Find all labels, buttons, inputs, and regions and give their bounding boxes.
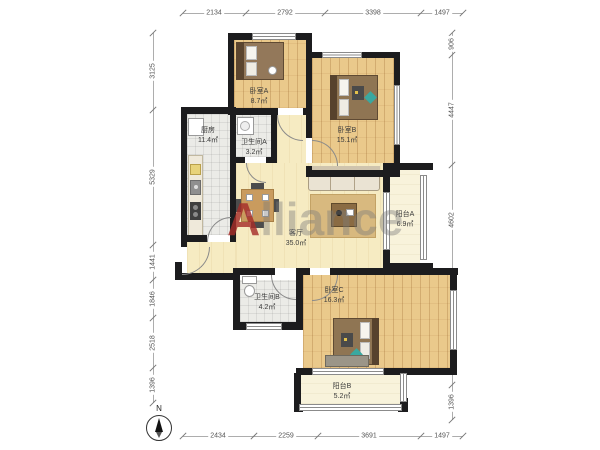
lamp-dot [344,338,347,341]
chair [251,221,264,228]
dim-label: 906 [449,36,456,52]
dim-label: 3691 [359,433,379,440]
room-label-kitchen: 厨房 11.4㎡ [198,126,218,146]
plate [262,210,269,217]
room-name: 客厅 [286,229,307,239]
window [322,52,362,58]
tray-icon [346,209,354,216]
bed-headboard [330,75,337,120]
dim-label: 1846 [150,289,157,309]
compass-needle-tail-icon [156,432,162,438]
sliding-door [312,368,384,375]
window [252,33,296,40]
dim-label: 2518 [150,333,157,353]
burner [193,212,198,217]
room-area: 6.9㎡ [396,220,415,230]
wall [231,235,236,242]
dim-label: 2259 [276,433,296,440]
window [420,175,427,260]
wall [181,107,187,247]
dim-label: 4602 [449,210,456,230]
pillow [339,99,349,116]
dim-label: 3125 [150,61,157,81]
room-label-balcony-a: 阳台A 6.9㎡ [396,210,415,230]
dim-label: 5329 [150,167,157,187]
room-name: 卫生间A [241,138,267,148]
plate [246,194,253,201]
room-name: 阳台B [333,382,352,392]
room-name: 阳台A [396,210,415,220]
dim-label: 2134 [204,10,224,17]
lamp-dot [355,91,358,94]
kettle-icon [336,210,342,216]
window [400,373,407,402]
bedding-box [341,333,353,347]
plate [262,194,269,201]
room-area: 35.0㎡ [286,239,307,249]
toilet-tank [242,276,257,284]
wall [384,368,392,375]
dim-tick [459,432,466,439]
pillow [339,79,349,96]
dim-label: 1441 [150,252,157,272]
room-label-living: 客厅 35.0㎡ [286,229,307,249]
room-label-bath-a: 卫生间A 3.2㎡ [241,138,267,158]
wall [296,268,310,275]
room-name: 卧室A [250,87,269,97]
window [299,404,402,411]
room-label-bath-b: 卫生间B 4.2㎡ [254,293,280,313]
dim-tick [459,9,466,16]
room-area: 8.7㎡ [250,97,269,107]
wall [271,115,277,163]
plate [246,210,253,217]
compass: N [142,404,176,448]
stool [268,66,277,75]
wall [383,163,394,177]
wall [306,33,312,138]
wall [228,108,278,115]
dim-tick [448,416,455,423]
room-area: 11.4㎡ [198,136,218,146]
window [450,290,457,350]
dim-label: 2792 [275,10,295,17]
room-name: 厨房 [198,126,218,136]
basin-bowl [240,121,250,131]
dim-label: 1396 [150,375,157,395]
compass-ring [146,415,172,441]
dim-label: 3398 [363,10,383,17]
room-name: 卫生间B [254,293,280,303]
window [394,85,400,145]
compass-north-label: N [142,404,176,414]
dim-label: 4447 [449,100,456,120]
room-name: 卧室B [337,126,358,136]
room-area: 5.2㎡ [333,392,352,402]
wall [383,177,390,192]
wall [181,235,207,242]
bedding-box [352,86,364,100]
room-area: 4.2㎡ [254,303,280,313]
room-label-bedroom-a: 卧室A 8.7㎡ [250,87,269,107]
room-area: 3.2㎡ [241,148,267,158]
room-label-bedroom-b: 卧室B 15.1㎡ [337,126,358,146]
window [246,323,282,330]
wall [266,157,277,163]
dim-label: 1497 [432,10,452,17]
wall [330,268,458,275]
floor-plan: 卧室A 8.7㎡ 卧室B 15.1㎡ 厨房 11.4㎡ 卫生间A 3.2㎡ 客厅… [0,0,600,450]
counter-item [190,164,201,175]
pillow [246,62,257,76]
pillow [246,46,257,60]
compass-needle-icon [155,418,163,432]
dim-label: 2434 [208,433,228,440]
dresser [325,355,369,367]
room-label-balcony-b: 阳台B 5.2㎡ [333,382,352,402]
sink-drain [194,185,198,189]
room-area: 16.3㎡ [324,296,345,306]
wall [390,163,433,170]
room-name: 卧室C [324,286,345,296]
bed-headboard [372,318,379,365]
dim-label: 1497 [432,433,452,440]
bed-headboard [236,42,244,80]
room-area: 15.1㎡ [337,136,358,146]
wall [228,33,234,115]
burner [193,205,198,210]
room-label-bedroom-c: 卧室C 16.3㎡ [324,286,345,306]
pillow [360,322,370,339]
sliding-door [383,192,390,250]
dim-label: 1396 [449,392,456,412]
wall [181,107,234,114]
